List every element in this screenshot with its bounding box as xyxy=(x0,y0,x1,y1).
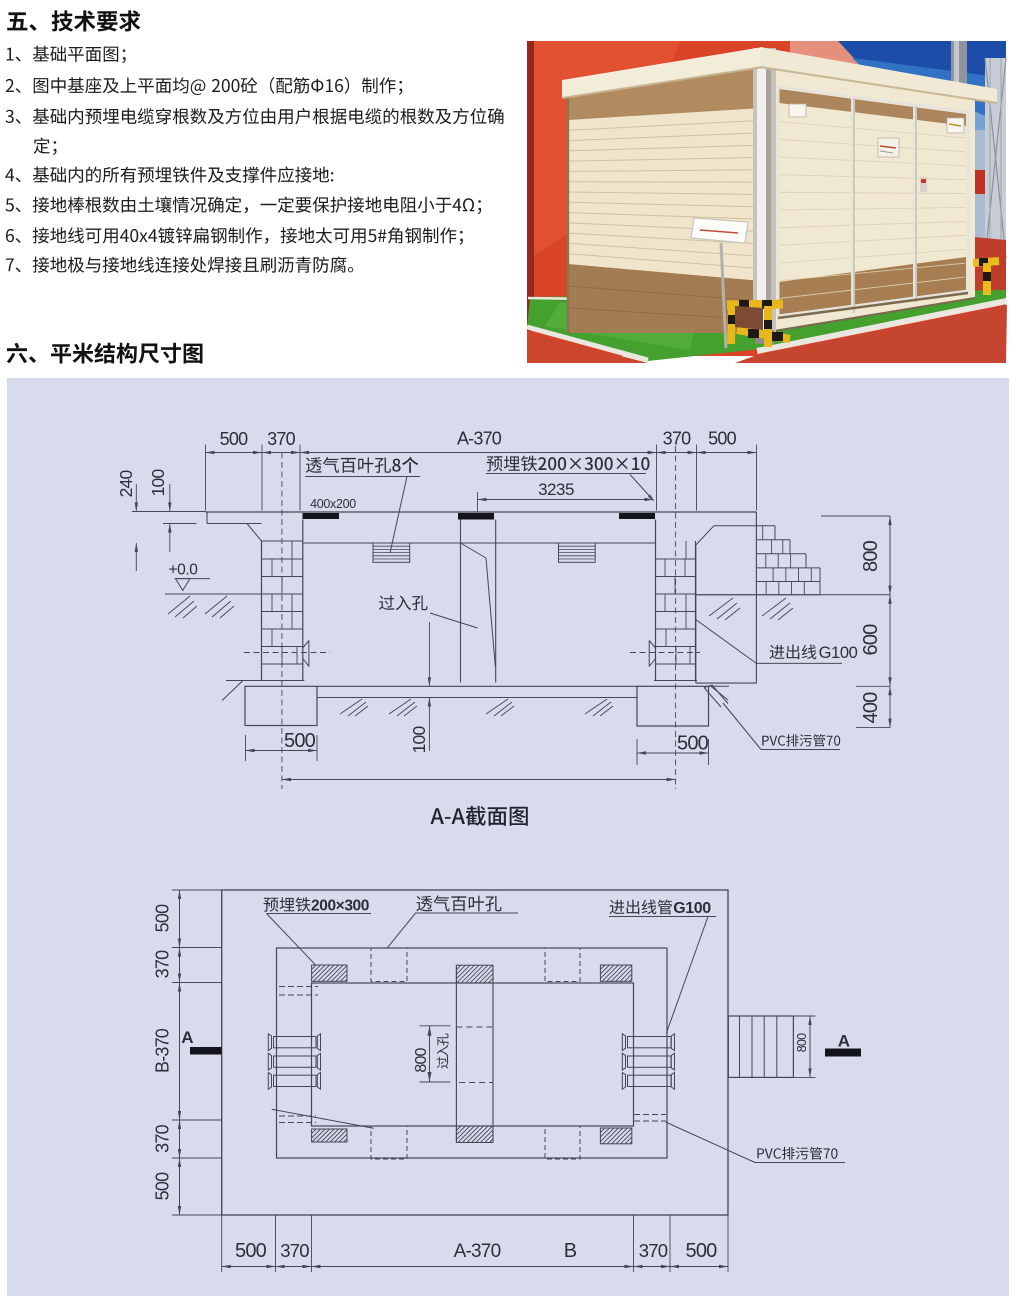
svg-text:500: 500 xyxy=(220,429,248,449)
svg-text:370: 370 xyxy=(639,1240,668,1261)
svg-text:500: 500 xyxy=(235,1240,267,1262)
svg-text:600: 600 xyxy=(860,624,882,656)
svg-text:370: 370 xyxy=(663,429,691,449)
svg-text:100: 100 xyxy=(148,469,168,497)
svg-text:3235: 3235 xyxy=(538,480,574,499)
svg-text:240: 240 xyxy=(116,470,136,498)
svg-text:B-370: B-370 xyxy=(153,1028,173,1073)
svg-text:G100: G100 xyxy=(673,900,711,917)
svg-text:500: 500 xyxy=(686,1240,718,1262)
svg-text:100: 100 xyxy=(409,726,429,754)
svg-text:200×300: 200×300 xyxy=(311,898,369,915)
svg-text:500: 500 xyxy=(677,733,709,755)
svg-text:370: 370 xyxy=(280,1240,309,1261)
svg-text:A: A xyxy=(181,1028,193,1047)
svg-text:800: 800 xyxy=(413,1047,430,1072)
svg-text:B: B xyxy=(564,1240,577,1262)
svg-text:800: 800 xyxy=(795,1033,809,1052)
svg-text:370: 370 xyxy=(153,950,173,978)
svg-text:+0.0: +0.0 xyxy=(169,562,199,579)
svg-text:400x200: 400x200 xyxy=(310,497,356,511)
svg-text:A-370: A-370 xyxy=(457,429,502,449)
svg-text:A: A xyxy=(838,1032,850,1051)
svg-text:370: 370 xyxy=(153,1124,173,1152)
svg-text:500: 500 xyxy=(153,904,173,932)
svg-text:500: 500 xyxy=(284,730,316,752)
svg-text:800: 800 xyxy=(860,540,882,572)
svg-text:A-370: A-370 xyxy=(454,1241,501,1262)
svg-text:500: 500 xyxy=(708,429,736,449)
svg-text:G100: G100 xyxy=(819,644,858,662)
svg-text:500: 500 xyxy=(153,1172,173,1200)
svg-text:370: 370 xyxy=(267,429,295,449)
svg-text:400: 400 xyxy=(860,692,882,724)
